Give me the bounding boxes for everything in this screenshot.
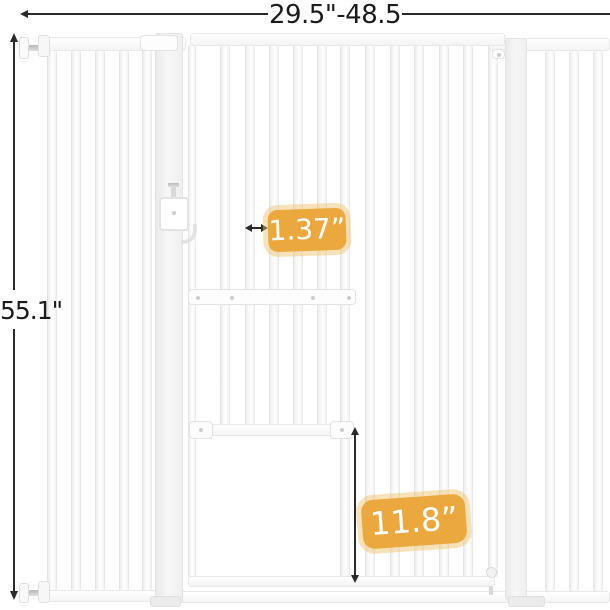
gate-top-rail: [190, 33, 505, 46]
gate-bar: [488, 45, 498, 577]
gate-bar: [119, 49, 129, 592]
pressure-mount-disc-top: [19, 37, 29, 59]
latch-post-foot: [150, 596, 181, 607]
gate-bar: [245, 45, 255, 425]
width-dimension-line-right: [402, 13, 610, 15]
arrow-left-small-icon: [245, 224, 252, 232]
cat-door-left-edge-bar: [188, 45, 196, 577]
right-post-foot: [508, 596, 545, 607]
gate-bar: [463, 45, 473, 577]
width-dimension-line-left: [22, 13, 268, 15]
cat-door-top-bar: [196, 424, 346, 436]
gate-bar: [569, 51, 579, 591]
right-frame-post: [505, 38, 527, 600]
overall-height-label: 55.1": [0, 297, 52, 325]
rail-clamp-bracket: [140, 35, 178, 51]
door-latch-pin: [486, 567, 497, 578]
mid-support-bracket: [188, 289, 356, 305]
gate-bar: [142, 49, 152, 592]
width-range-label: 29.5"-48.5: [266, 0, 404, 30]
gate-bar: [593, 51, 603, 591]
cat-door-height-badge: 11.8”: [360, 493, 467, 549]
pressure-mount-plate-top: [38, 35, 50, 57]
cat-door-opening: [196, 436, 340, 576]
product-dimension-diagram: 29.5"-48.5 55.1" 1.37” 11.8”: [0, 0, 610, 610]
gate-bar: [95, 49, 105, 592]
arrow-left-icon: [20, 10, 28, 18]
door-bottom-rail: [188, 576, 495, 587]
gate-bar: [545, 51, 555, 591]
height-dimension-line-upper: [13, 40, 15, 290]
gate-bar: [340, 45, 350, 577]
gate-bar: [71, 49, 81, 592]
cat-door-arrow-line: [354, 433, 356, 577]
gate-bar: [220, 45, 230, 425]
arrow-down-small-icon: [351, 575, 359, 583]
pressure-mount-plate-bottom: [38, 581, 50, 603]
arrow-down-icon: [10, 591, 18, 600]
door-latch-pin-stem: [489, 586, 493, 595]
bracket-hole: [497, 53, 501, 57]
height-dimension-line-lower: [13, 329, 15, 592]
bar-spacing-badge: 1.37”: [267, 208, 346, 253]
gate-bar: [365, 45, 375, 577]
latch-post: [155, 33, 183, 603]
rail-hook-bracket: [492, 49, 505, 59]
pressure-mount-disc-bottom: [19, 583, 29, 603]
